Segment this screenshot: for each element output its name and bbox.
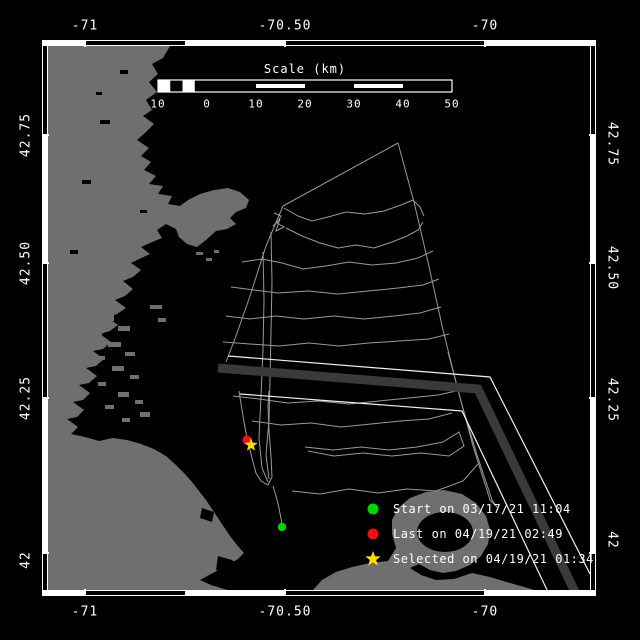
scale-tick-2: 10 — [248, 98, 263, 111]
lat-label-right-0: 42.75 — [605, 122, 620, 166]
map-canvas — [0, 0, 640, 640]
lat-label-left-2: 42.25 — [19, 376, 34, 420]
lat-label-left-1: 42.50 — [19, 241, 34, 285]
scale-tick-0: 10 — [150, 98, 165, 111]
scale-bar-title: Scale (km) — [264, 62, 346, 76]
lon-label-bottom-2: -70 — [472, 605, 498, 620]
scale-tick-4: 30 — [346, 98, 361, 111]
legend-selected-label: Selected on 04/19/21 01:34 — [393, 552, 594, 566]
start-marker — [278, 523, 286, 531]
glider-track-map[interactable]: -71 -70.50 -70 -71 -70.50 -70 42.75 42.5… — [0, 0, 640, 640]
lat-label-right-3: 42 — [605, 531, 620, 549]
legend-last-dot — [368, 529, 379, 540]
lon-label-top-1: -70.50 — [259, 19, 312, 34]
lat-label-left-0: 42.75 — [19, 113, 34, 157]
legend-last-label: Last on 04/19/21 02:49 — [393, 527, 563, 541]
scale-tick-3: 20 — [297, 98, 312, 111]
scale-tick-1: 0 — [203, 98, 211, 111]
lat-label-left-3: 42 — [19, 551, 34, 569]
lon-label-bottom-0: -71 — [72, 605, 98, 620]
legend-start-dot — [368, 504, 379, 515]
lat-label-right-2: 42.25 — [605, 378, 620, 422]
scale-bar — [158, 80, 452, 92]
lon-label-bottom-1: -70.50 — [259, 605, 312, 620]
legend-start-label: Start on 03/17/21 11:04 — [393, 502, 571, 516]
scale-tick-5: 40 — [395, 98, 410, 111]
lon-label-top-2: -70 — [472, 19, 498, 34]
lon-label-top-0: -71 — [72, 19, 98, 34]
scale-tick-6: 50 — [444, 98, 459, 111]
lat-label-right-1: 42.50 — [605, 246, 620, 290]
